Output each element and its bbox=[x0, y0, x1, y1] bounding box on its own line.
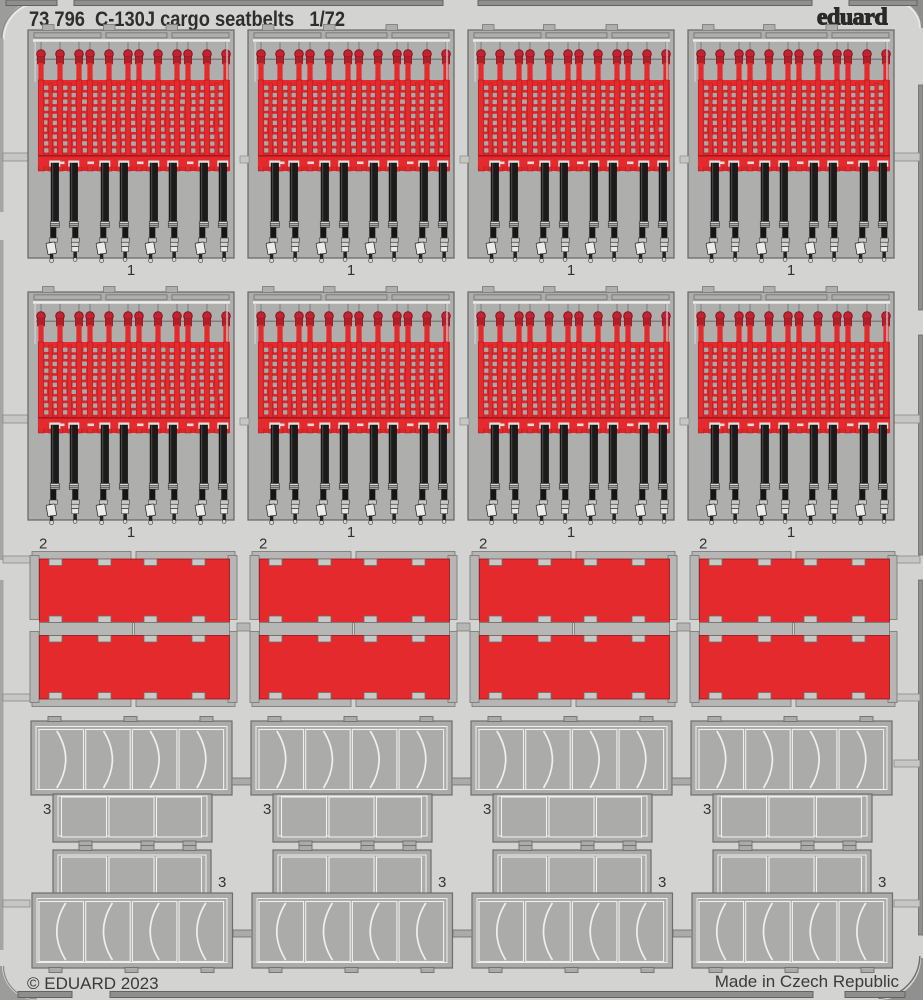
svg-text:73 796 C-130J cargo seatbelts: 73 796 C-130J cargo seatbelts 1/72 bbox=[29, 8, 345, 31]
svg-text:Made in Czech Republic: Made in Czech Republic bbox=[715, 972, 900, 991]
svg-text:© EDUARD 2023: © EDUARD 2023 bbox=[27, 974, 159, 993]
